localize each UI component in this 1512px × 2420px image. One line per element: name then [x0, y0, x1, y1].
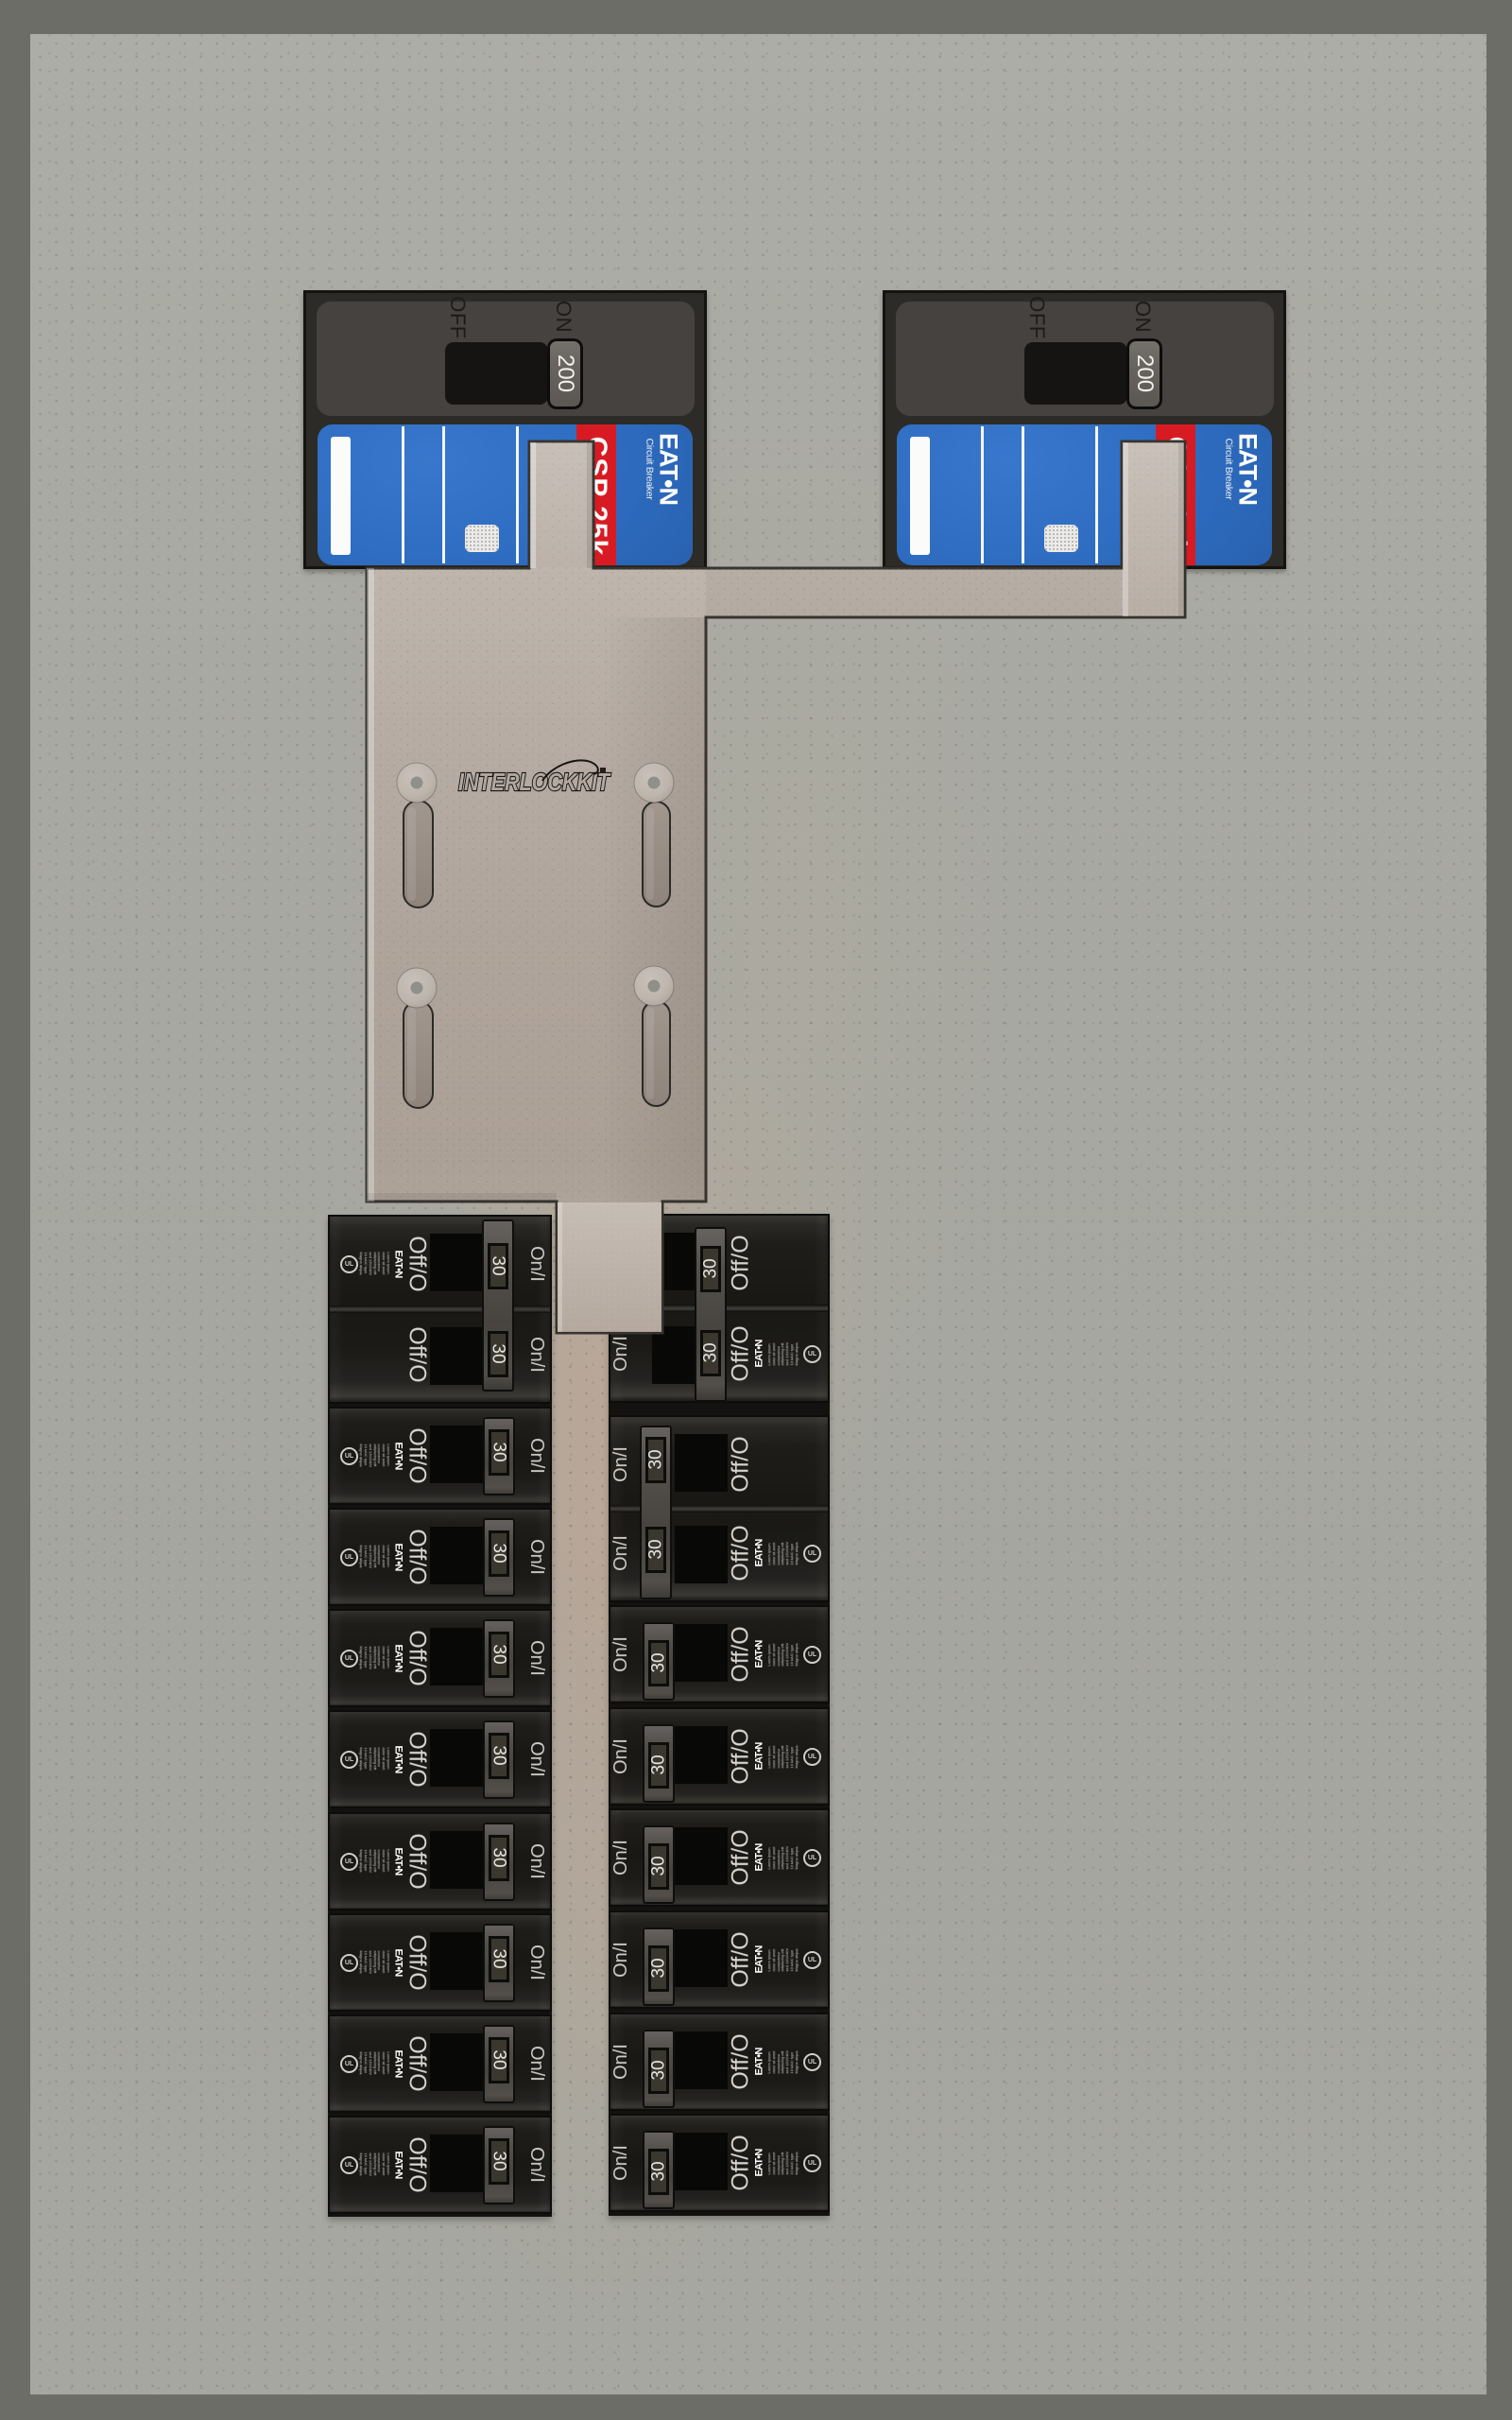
- svg-text:INTERLOCKKIT: INTERLOCKKIT: [458, 768, 611, 796]
